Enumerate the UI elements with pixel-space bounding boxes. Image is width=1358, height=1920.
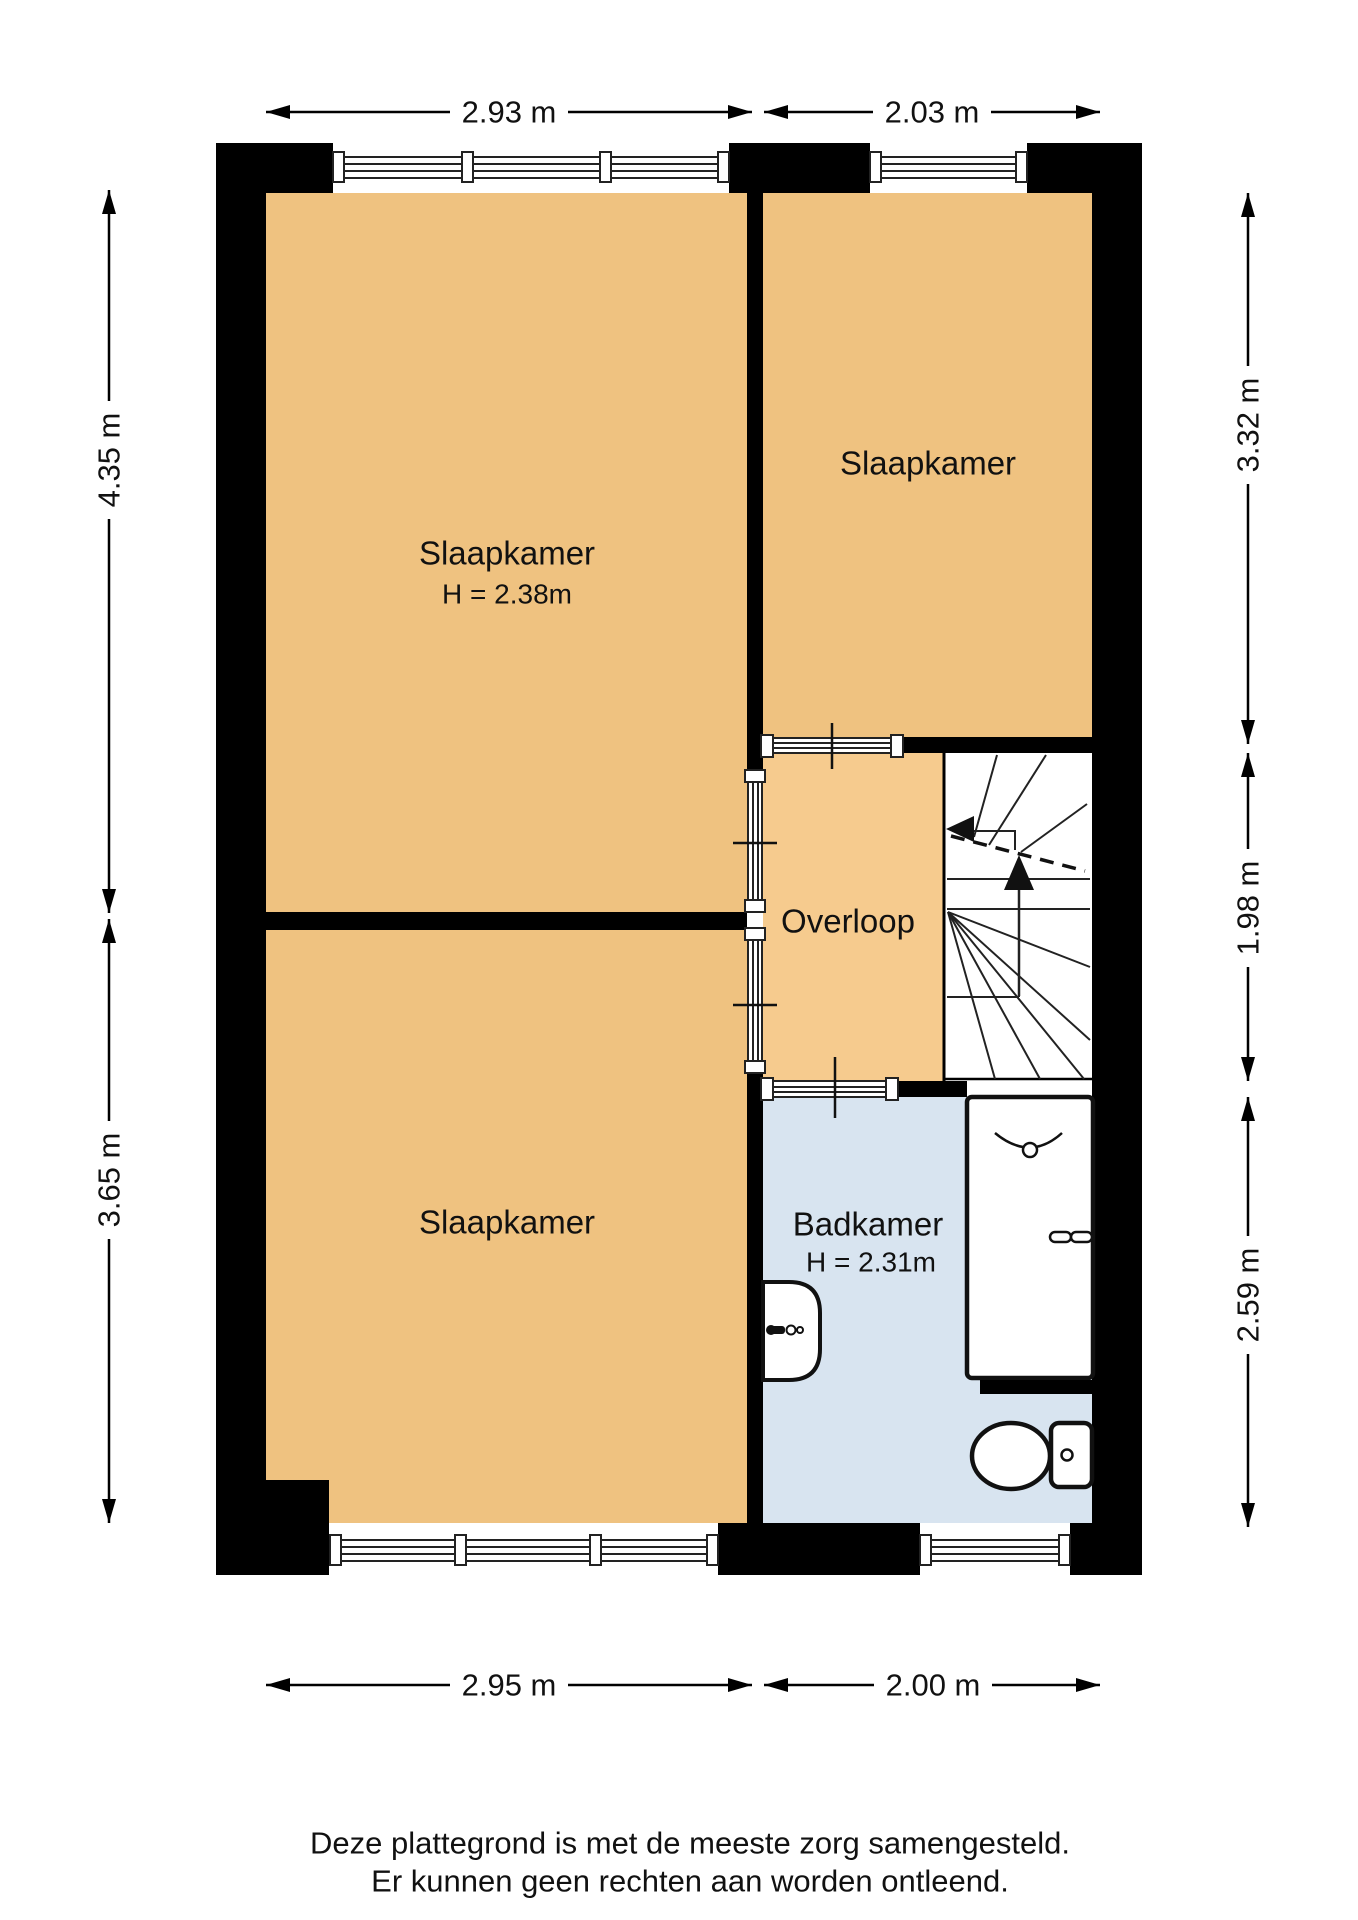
wall-left — [216, 143, 266, 1575]
wall-bottom-pier — [718, 1523, 920, 1575]
dim-label: 2.95 m — [462, 1668, 557, 1703]
dim-label: 1.98 m — [1231, 861, 1266, 956]
dim-label: 2.93 m — [462, 95, 557, 130]
toilet-icon — [972, 1423, 1092, 1489]
floorplan-page: 2.93 m 2.03 m 2.95 m 2.00 m — [0, 0, 1358, 1920]
wall-above-bathroom — [897, 1081, 967, 1097]
dim-label: 2.00 m — [886, 1668, 981, 1703]
room-note-bedroom-large: H = 2.38m — [442, 579, 572, 610]
window-top-left — [333, 152, 729, 182]
door-large-bedroom — [745, 770, 765, 912]
wall-bottom-right-block — [1070, 1523, 1142, 1575]
room-label-bedroom-topright: Slaapkamer — [840, 445, 1016, 482]
wall-right — [1092, 143, 1142, 1575]
room-label-bedroom-large: Slaapkamer — [419, 535, 595, 572]
dim-label: 2.59 m — [1231, 1248, 1266, 1343]
window-bottom-right — [920, 1535, 1070, 1565]
floorplan-drawing: 2.93 m 2.03 m 2.95 m 2.00 m — [0, 0, 1358, 1920]
disclaimer-line-1: Deze plattegrond is met de meeste zorg s… — [310, 1826, 1070, 1861]
wall-bottom-left-block — [216, 1480, 329, 1575]
wall-under-topright-bedroom — [902, 737, 1092, 753]
wall-between-left-bedrooms — [266, 912, 747, 930]
window-top-right — [870, 152, 1027, 182]
window-bottom-left — [330, 1535, 718, 1565]
dim-label: 3.65 m — [92, 1133, 127, 1228]
wall-top-pier — [729, 143, 870, 193]
room-note-bathroom: H = 2.31m — [806, 1247, 936, 1278]
room-label-bedroom-bottomleft: Slaapkamer — [419, 1204, 595, 1241]
dim-label: 4.35 m — [92, 413, 127, 508]
sink-icon — [763, 1282, 820, 1380]
disclaimer-line-2: Er kunnen geen rechten aan worden ontlee… — [371, 1864, 1009, 1899]
bathtub-icon — [967, 1097, 1093, 1394]
door-bottomleft-bedroom — [745, 928, 765, 1073]
wall-interior-vertical-upper — [747, 193, 763, 772]
room-label-landing: Overloop — [781, 903, 915, 940]
dim-label: 3.32 m — [1231, 378, 1266, 473]
door-bathroom — [761, 1078, 898, 1100]
dim-label: 2.03 m — [885, 95, 980, 130]
wall-interior-vertical-lower — [747, 1097, 763, 1523]
room-label-bathroom: Badkamer — [793, 1206, 943, 1243]
